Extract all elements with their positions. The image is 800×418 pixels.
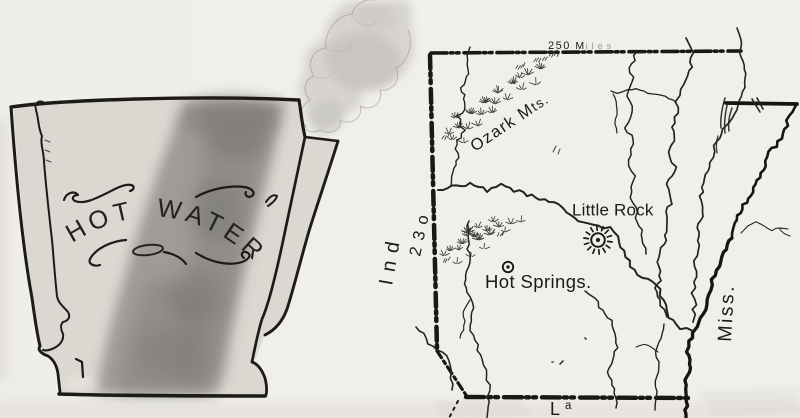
svg-text:a: a	[565, 400, 572, 412]
svg-text:Little Rock: Little Rock	[572, 201, 654, 220]
svg-text:Miss.: Miss.	[714, 283, 739, 342]
svg-text:Hot Springs.: Hot Springs.	[485, 271, 592, 292]
svg-text:L: L	[550, 399, 560, 418]
svg-text:250 Miles: 250 Miles	[548, 40, 615, 52]
